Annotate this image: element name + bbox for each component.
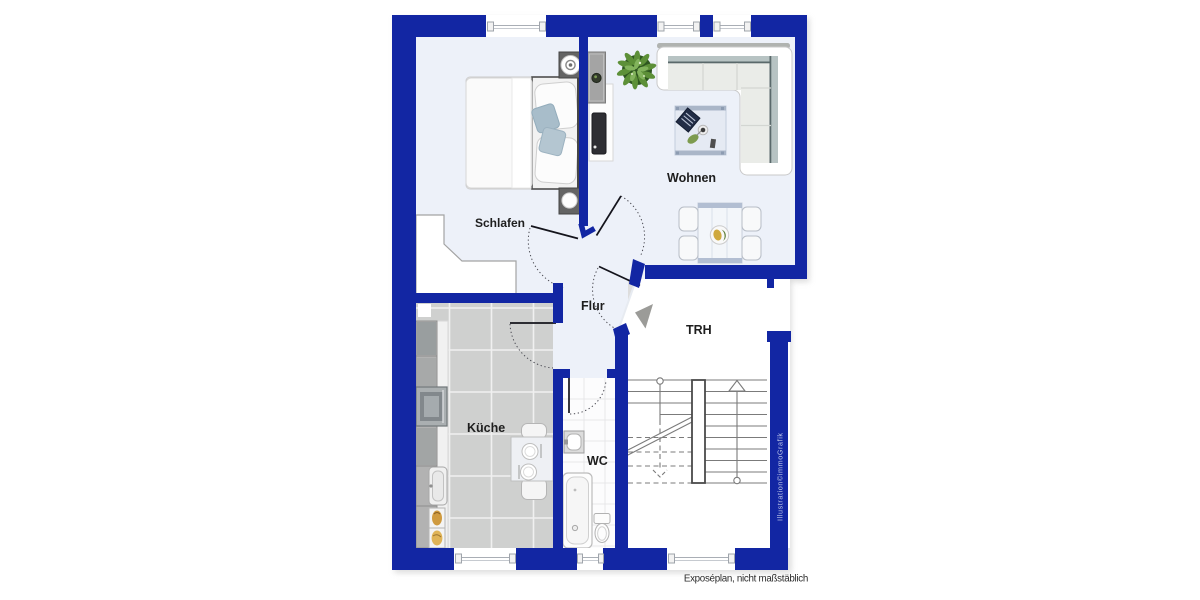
svg-text:Schlafen: Schlafen (475, 216, 525, 230)
svg-text:Wohnen: Wohnen (667, 171, 716, 185)
svg-text:Küche: Küche (467, 421, 505, 435)
svg-text:Illustration©immoGrafik: Illustration©immoGrafik (776, 432, 785, 521)
svg-text:WC: WC (587, 454, 608, 468)
svg-text:Exposéplan, nicht maßstäblich: Exposéplan, nicht maßstäblich (684, 574, 808, 585)
svg-text:TRH: TRH (686, 323, 712, 337)
svg-text:Flur: Flur (581, 299, 605, 313)
